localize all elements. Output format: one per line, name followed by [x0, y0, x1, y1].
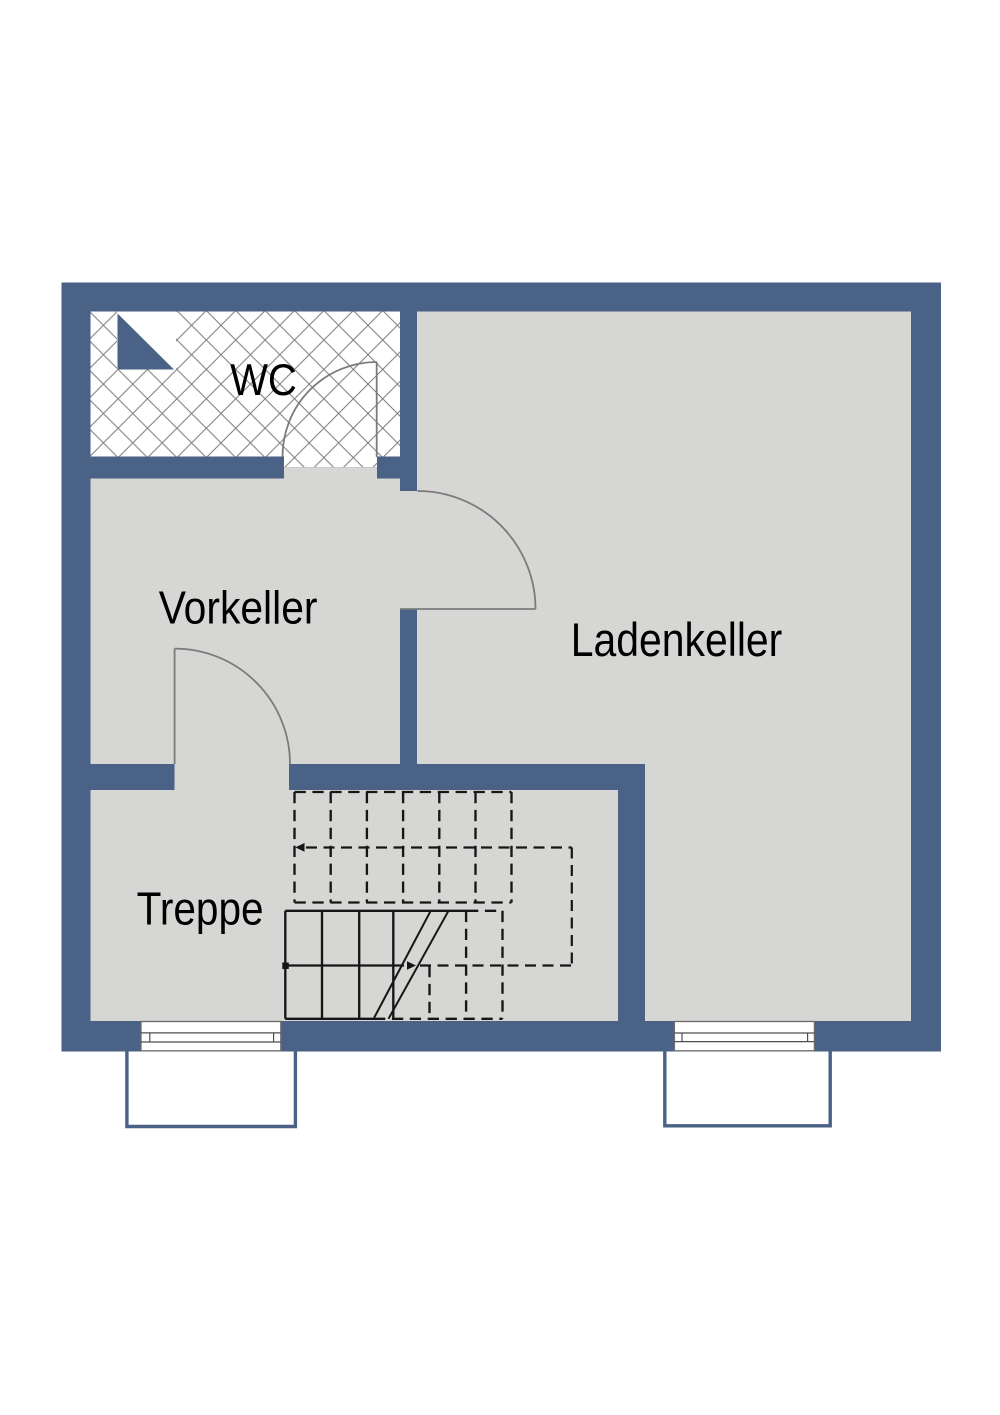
- svg-text:Vorkeller: Vorkeller: [159, 582, 318, 634]
- svg-text:WC: WC: [230, 356, 297, 405]
- svg-text:Treppe: Treppe: [137, 883, 264, 935]
- svg-text:Ladenkeller: Ladenkeller: [571, 614, 783, 667]
